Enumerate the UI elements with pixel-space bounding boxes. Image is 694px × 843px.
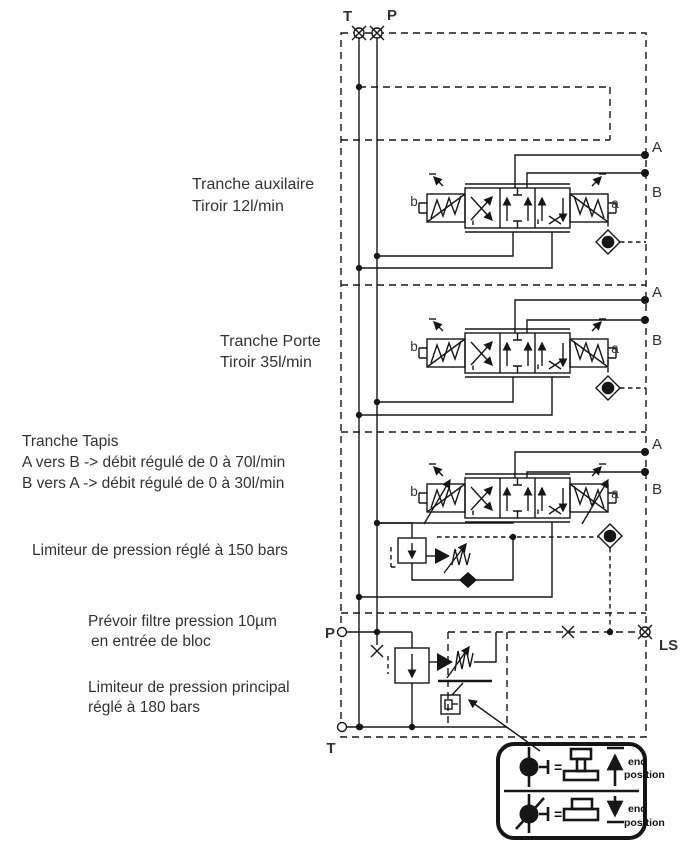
valve-section-aux [359, 151, 649, 268]
load-check-valve-icon [596, 360, 646, 400]
schematic-canvas: = end position = [0, 0, 694, 843]
port-a-label-2: A [652, 284, 662, 301]
supply-lines [352, 26, 384, 730]
legend-caption: end [628, 756, 647, 768]
main-relief-note-line1: Limiteur de pression principal [88, 679, 290, 696]
section-aux-title: Tranche auxilaire [192, 176, 314, 193]
port-ls-label: LS [659, 637, 678, 654]
legend-equals: = [554, 806, 562, 822]
pilot-a-label-3: a [611, 486, 619, 501]
legend-row-2: = end position [516, 794, 665, 833]
inlet-section [338, 625, 653, 751]
pilot-a-label-2: a [611, 341, 619, 356]
port-a-label-3: A [652, 436, 662, 453]
port-b-label-1: B [652, 184, 662, 201]
pilot-a-label-1: a [611, 196, 619, 211]
pushbutton-down-icon [564, 799, 598, 820]
manual-override-icon [438, 681, 492, 714]
filter-note-line1: Prévoir filtre pression 10µm [88, 613, 277, 630]
port-p-inlet-icon [338, 628, 347, 637]
main-relief-note-line2: réglé à 180 bars [88, 699, 200, 716]
section-relief-valve-150 [377, 523, 516, 588]
legend-caption: position [624, 817, 665, 829]
plugged-port-p-icon [370, 26, 384, 40]
port-t-outlet-label: T [326, 740, 335, 757]
section-porte-subtitle: Tiroir 35l/min [220, 354, 312, 371]
load-check-valve-icon [596, 214, 646, 254]
port-t-top-label: T [343, 8, 352, 25]
port-t-outlet-icon [338, 723, 347, 732]
main-relief-valve-icon [429, 632, 496, 678]
section-tapis-note-ba: B vers A -> débit régulé de 0 à 30l/min [22, 475, 284, 492]
port-b-label-2: B [652, 332, 662, 349]
port-a-label-1: A [652, 139, 662, 156]
legend-equals: = [554, 759, 562, 775]
plugged-port-t-icon [352, 26, 366, 40]
section-tapis-note-ab: A vers B -> débit régulé de 0 à 70l/min [22, 454, 285, 471]
end-stop-up-icon [607, 748, 624, 786]
port-b-label-3: B [652, 481, 662, 498]
labels: T P Tranche auxilaire Tiroir 12l/min Tra… [22, 7, 678, 757]
hydraulic-schematic: = end position = [0, 0, 694, 843]
pilot-b-label-1: b [410, 194, 418, 209]
legend-caption: position [624, 769, 665, 781]
port-p-top-label: P [387, 7, 397, 24]
pilot-b-label-3: b [410, 484, 418, 499]
relief-150-note: Limiteur de pression réglé à 150 bars [32, 542, 288, 559]
ls-line [448, 625, 652, 639]
filter-note-line2: en entrée de bloc [91, 633, 211, 650]
detent-dot-icon [520, 758, 539, 777]
pushbutton-up-icon [564, 749, 598, 780]
port-p-inlet-label: P [325, 625, 335, 642]
end-stop-down-icon [607, 796, 624, 822]
valve-section-porte [359, 296, 649, 415]
plug-restrictor-icon [371, 632, 383, 657]
section-aux-subtitle: Tiroir 12l/min [192, 198, 284, 215]
section-tapis-title: Tranche Tapis [22, 433, 119, 450]
valve-section-tapis [359, 448, 649, 632]
legend-caption: end [628, 803, 647, 815]
legend-box: = end position = [498, 744, 665, 838]
pilot-b-label-2: b [410, 339, 418, 354]
section-porte-title: Tranche Porte [220, 333, 321, 350]
plugged-port-ls-icon [638, 625, 652, 639]
